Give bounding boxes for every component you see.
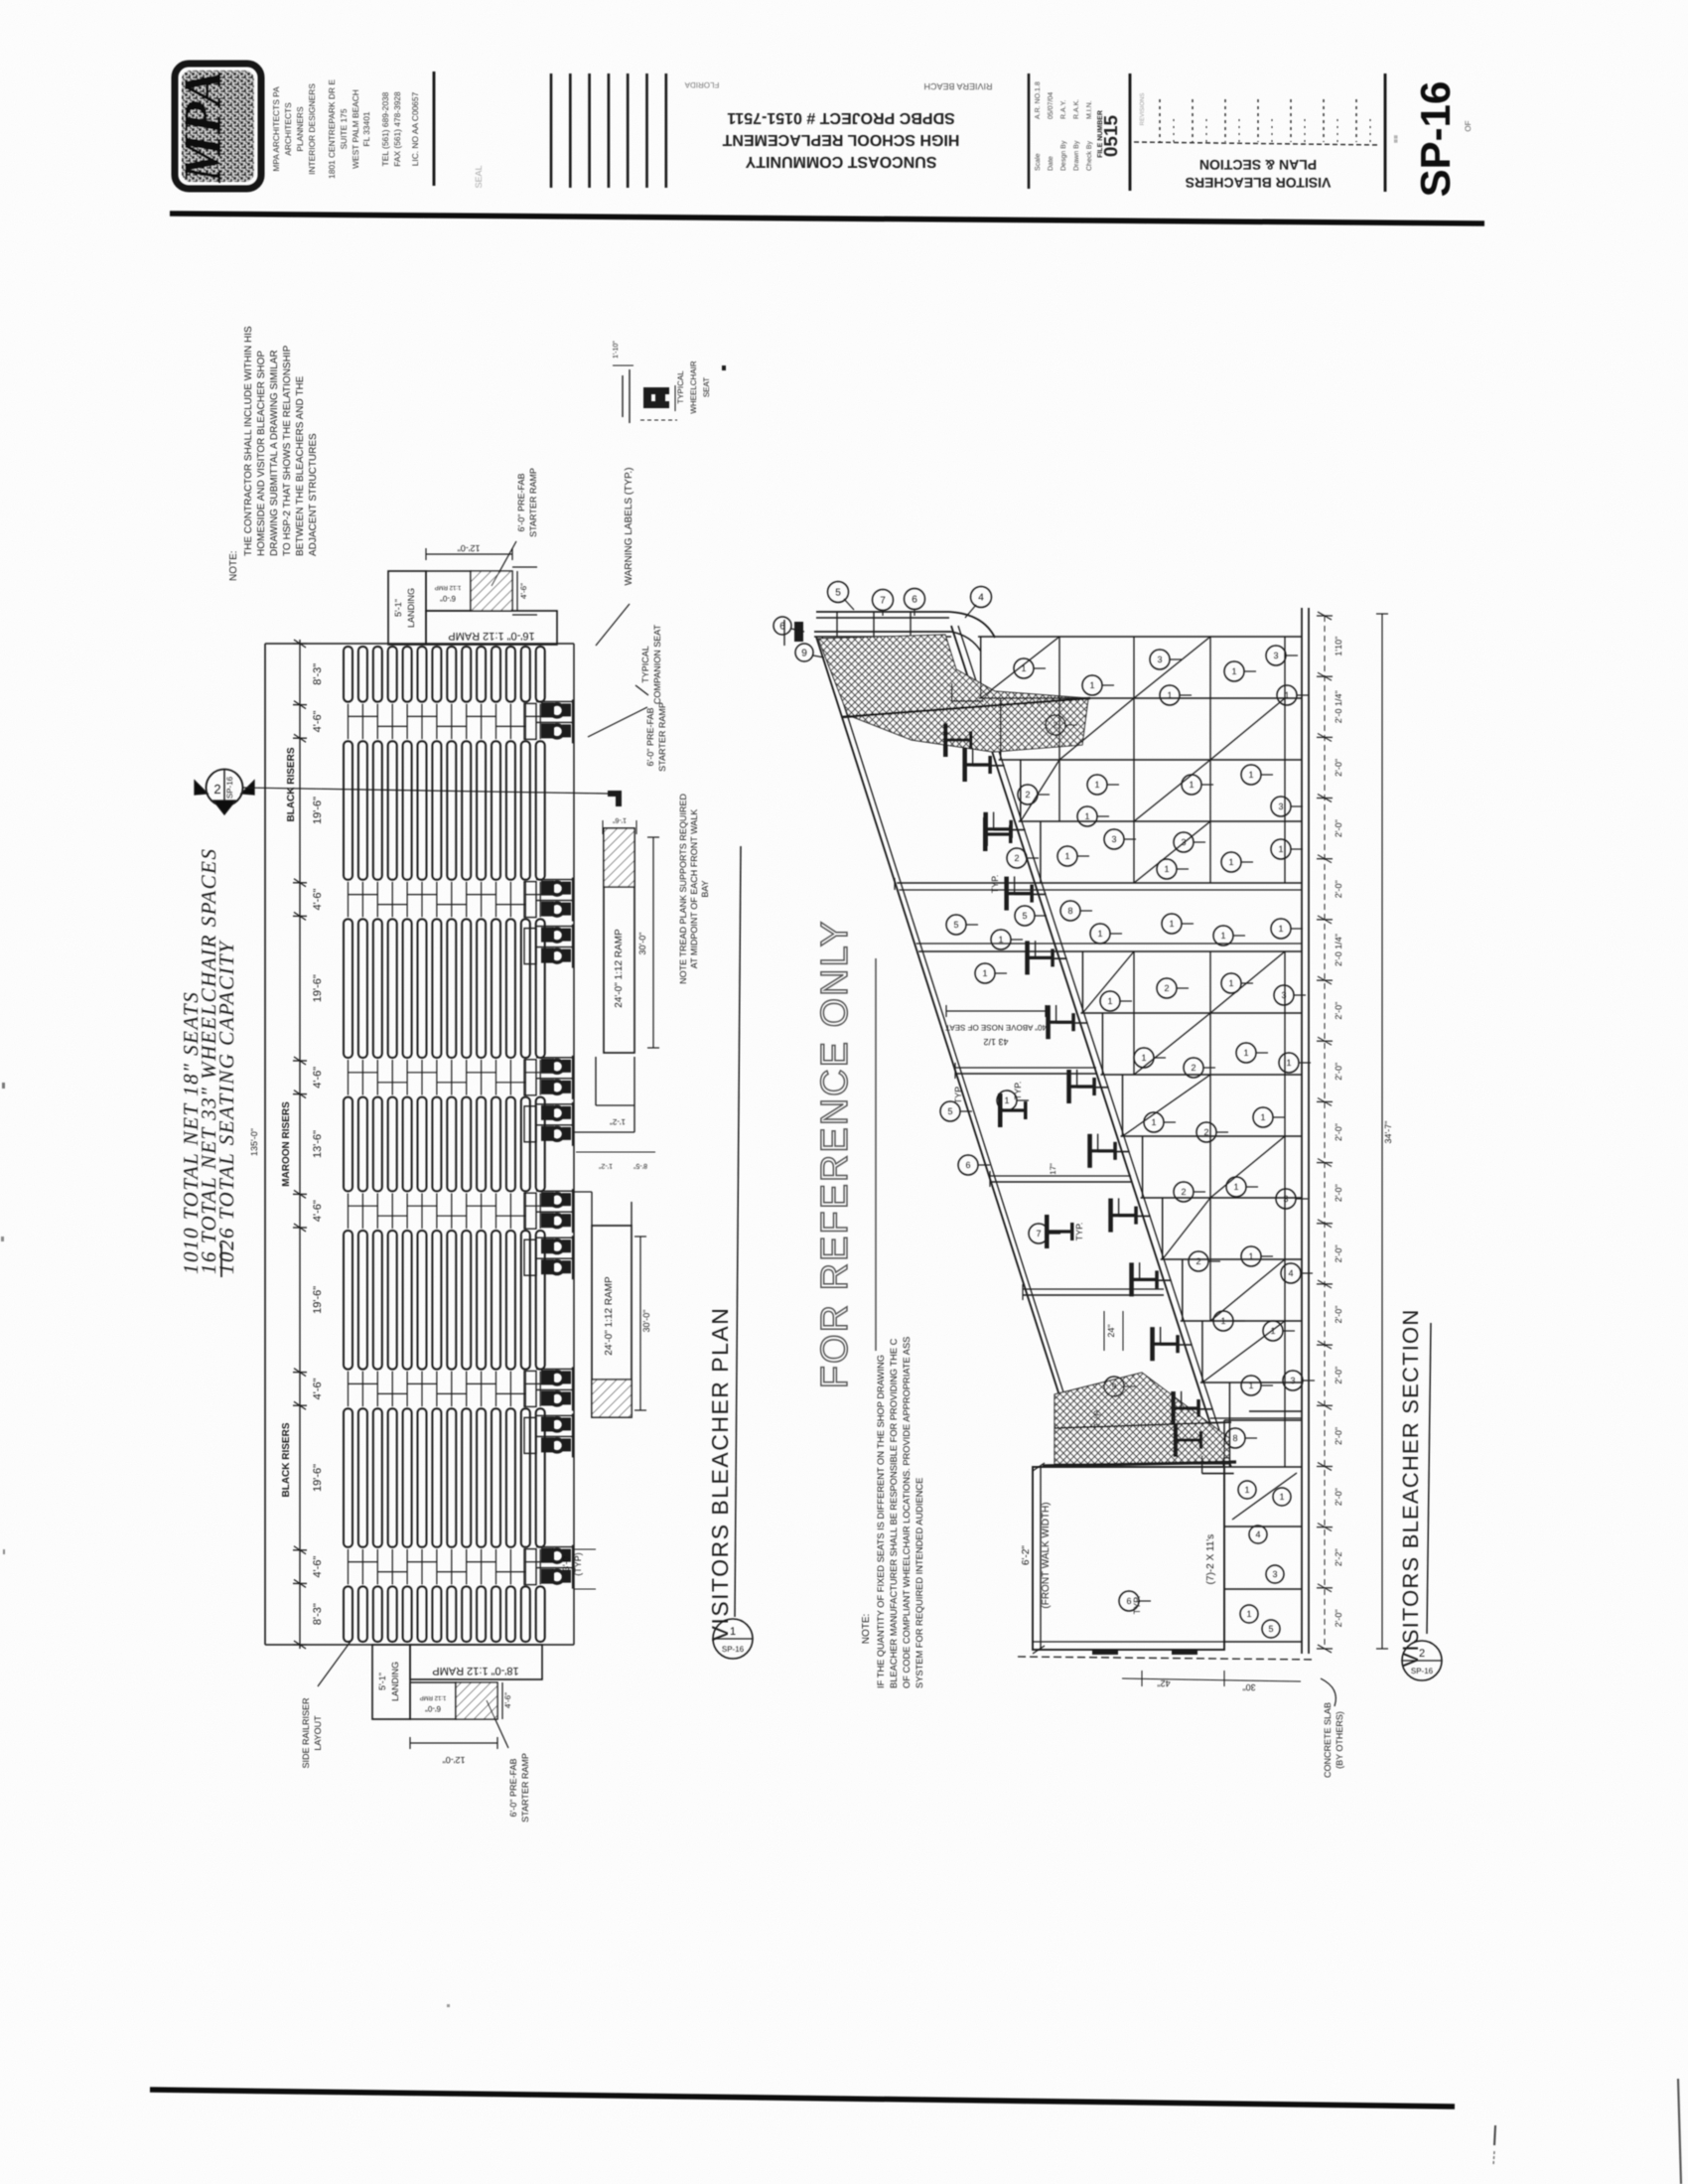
svg-text:Date: Date: [1048, 156, 1055, 171]
svg-text:2: 2: [1181, 1187, 1186, 1197]
svg-text:HIGH SCHOOL REPLACEMENT: HIGH SCHOOL REPLACEMENT: [722, 131, 959, 148]
svg-text:19'-6": 19'-6": [312, 1286, 324, 1314]
svg-text:19'-6": 19'-6": [312, 797, 324, 824]
svg-text:NOTE TREAD PLANK SUPPORTS REQ: NOTE TREAD PLANK SUPPORTS REQUIRED: [678, 794, 688, 984]
svg-text:6'-0": 6'-0": [425, 1704, 441, 1713]
svg-text:AT MIDPOINT OF EACH FRONT WALK: AT MIDPOINT OF EACH FRONT WALK: [689, 809, 699, 969]
svg-text:2'-0": 2'-0": [1334, 759, 1343, 777]
svg-text:1'-2": 1'-2": [599, 1162, 613, 1169]
svg-text:5: 5: [835, 588, 841, 599]
svg-text:2'-0 1/4": 2'-0 1/4": [1334, 690, 1343, 723]
svg-text:TYP.: TYP.: [1074, 1223, 1084, 1241]
svg-text:1: 1: [1167, 690, 1172, 700]
svg-text:12'-0": 12'-0": [443, 1755, 466, 1765]
svg-text:IF THE QUANTITY OF FIXED SEATS: IF THE QUANTITY OF FIXED SEATS IS DIFFER…: [876, 1355, 886, 1688]
svg-text:12'-0": 12'-0": [458, 543, 481, 553]
svg-text:2'-0": 2'-0": [1334, 1184, 1343, 1202]
svg-text:COMPANION SEAT: COMPANION SEAT: [652, 624, 662, 704]
svg-text:4'-6": 4'-6": [312, 1200, 324, 1222]
svg-text:1: 1: [998, 935, 1003, 945]
svg-text:SEAL: SEAL: [474, 165, 484, 188]
svg-text:3: 3: [1281, 990, 1286, 1000]
svg-text:2: 2: [1203, 1127, 1208, 1137]
svg-text:WHEELCHAIR: WHEELCHAIR: [689, 361, 698, 414]
svg-text:8'-5": 8'-5": [633, 1162, 647, 1169]
svg-text:6: 6: [1126, 1596, 1131, 1606]
svg-text:Check By: Check By: [1085, 141, 1093, 171]
svg-text:9: 9: [801, 649, 807, 659]
svg-text:2'-0 1/4": 2'-0 1/4": [1334, 934, 1343, 966]
svg-text:1: 1: [1084, 811, 1089, 821]
svg-text:TYPICAL: TYPICAL: [676, 370, 685, 404]
svg-text:5: 5: [947, 1106, 952, 1116]
svg-text:RIVIERA BEACH: RIVIERA BEACH: [923, 81, 992, 91]
svg-text:24'-0" 1:12 RAMP: 24'-0" 1:12 RAMP: [614, 929, 625, 1008]
svg-text:PLAN & SECTION: PLAN & SECTION: [1199, 157, 1317, 173]
svg-text:1: 1: [1141, 1053, 1146, 1063]
svg-text:M.I.N.: M.I.N.: [1086, 100, 1093, 119]
svg-text:Drawn By: Drawn By: [1073, 140, 1080, 171]
svg-text:1: 1: [1279, 1492, 1284, 1502]
svg-text:17": 17": [1049, 1163, 1057, 1175]
svg-text:BLACK RISERS: BLACK RISERS: [286, 747, 297, 821]
svg-text:1: 1: [1220, 1316, 1225, 1326]
svg-text:1: 1: [1284, 690, 1289, 700]
svg-text:2'-2": 2'-2": [1334, 1548, 1343, 1566]
svg-text:1'-2": 1'-2": [610, 1117, 626, 1126]
svg-text:2: 2: [1164, 983, 1169, 993]
svg-text:WARNING LABELS (TYP.): WARNING LABELS (TYP.): [624, 468, 634, 586]
svg-text:(TYP): (TYP): [573, 1552, 583, 1576]
svg-text:R.A.K.: R.A.K.: [1073, 99, 1080, 119]
svg-text:1: 1: [1260, 1112, 1265, 1122]
svg-text:2'-0": 2'-0": [1334, 1244, 1343, 1262]
svg-text:3'-0": 3'-0": [561, 1553, 571, 1571]
svg-text:3: 3: [1283, 1194, 1288, 1204]
svg-text:1: 1: [1228, 857, 1233, 867]
svg-text:(FRONT WALK WIDTH): (FRONT WALK WIDTH): [1041, 1502, 1052, 1608]
svg-text:43 1/2: 43 1/2: [983, 1037, 1008, 1047]
svg-text:NOTE:: NOTE:: [861, 1614, 872, 1645]
svg-text:LANDING: LANDING: [406, 588, 416, 628]
svg-text:7: 7: [880, 596, 886, 607]
svg-text:FAX (561) 478-3928: FAX (561) 478-3928: [392, 91, 402, 167]
svg-text:SIDE RAILRISER: SIDE RAILRISER: [301, 1697, 311, 1769]
svg-text:1: 1: [1189, 780, 1194, 790]
svg-text:MPA: MPA: [173, 70, 232, 183]
svg-text:3: 3: [1278, 801, 1283, 811]
svg-text:LAYOUT: LAYOUT: [313, 1715, 323, 1751]
svg-text:4'-6": 4'-6": [312, 1378, 324, 1399]
svg-text:1: 1: [1246, 1609, 1251, 1619]
svg-text:7: 7: [1036, 1229, 1041, 1238]
svg-text:2: 2: [1196, 1256, 1200, 1266]
svg-text:THE CONTRACTOR SHALL INCLUDE W: THE CONTRACTOR SHALL INCLUDE WITHIN HIS: [243, 326, 254, 556]
svg-text:3: 3: [1272, 1569, 1277, 1579]
svg-text:1: 1: [1278, 844, 1283, 854]
svg-text:2'-0": 2'-0": [1334, 1123, 1343, 1141]
svg-text:4'-6": 4'-6": [519, 583, 528, 599]
svg-text:TYP.: TYP.: [1132, 1596, 1142, 1615]
svg-text:5'-1": 5'-1": [393, 599, 403, 617]
svg-text:5'-1": 5'-1": [377, 1673, 387, 1690]
svg-text:6'-2": 6'-2": [1021, 1545, 1032, 1565]
svg-text:1: 1: [1248, 1251, 1253, 1261]
svg-text:TYPICAL: TYPICAL: [640, 646, 650, 683]
svg-text:34'-7": 34'-7": [1383, 1121, 1393, 1144]
svg-text:3: 3: [1181, 837, 1186, 847]
svg-text:DRAWING SUBMITTAL A DRAWING SI: DRAWING SUBMITTAL A DRAWING SIMILAR: [269, 350, 280, 556]
svg-text:1: 1: [1220, 931, 1225, 941]
svg-text:(7)-2 X 11's: (7)-2 X 11's: [1205, 1534, 1216, 1585]
svg-text:8'-3": 8'-3": [312, 1603, 324, 1625]
svg-text:42": 42": [1157, 1678, 1170, 1688]
svg-text:Scale: Scale: [1034, 153, 1042, 171]
svg-text:4: 4: [1255, 1529, 1260, 1539]
svg-text:TYP.: TYP.: [953, 1086, 963, 1104]
svg-text:MAROON RISERS: MAROON RISERS: [281, 1101, 292, 1187]
svg-text:1: 1: [1228, 978, 1233, 988]
svg-text:FOR REFERENCE ONLY: FOR REFERENCE ONLY: [814, 920, 856, 1388]
svg-text:1: 1: [1244, 1485, 1249, 1495]
svg-text:1: 1: [1231, 666, 1236, 676]
svg-text:30": 30": [1242, 1682, 1255, 1692]
svg-text:STARTER RAMP: STARTER RAMP: [520, 1753, 530, 1822]
svg-text:1: 1: [1094, 780, 1099, 790]
svg-text:24": 24": [1106, 1324, 1116, 1337]
svg-text:ARCHITECTS: ARCHITECTS: [283, 102, 293, 156]
svg-text:6: 6: [779, 622, 785, 633]
svg-text:STARTER RAMP: STARTER RAMP: [528, 468, 538, 537]
svg-text:1: 1: [1151, 1117, 1156, 1127]
svg-text:6'-0": 6'-0": [440, 594, 456, 603]
svg-text:1: 1: [1097, 929, 1102, 939]
svg-text:4'-6": 4'-6": [312, 1067, 324, 1089]
svg-text:SDPBC PROJECT # 0151-7511: SDPBC PROJECT # 0151-7511: [727, 109, 955, 126]
svg-text:2'-0": 2'-0": [1334, 1063, 1343, 1081]
svg-text:WEST PALM BEACH: WEST PALM BEACH: [351, 89, 360, 169]
svg-text:SP-16: SP-16: [1412, 81, 1459, 198]
svg-text:3: 3: [1273, 651, 1278, 660]
svg-text:4'-6": 4'-6": [312, 1556, 324, 1578]
svg-text:2: 2: [1025, 790, 1030, 800]
svg-text:VISITOR BLEACHERS: VISITOR BLEACHERS: [1186, 175, 1332, 191]
svg-text:1: 1: [1089, 680, 1094, 690]
svg-text:1'-10": 1'-10": [613, 341, 620, 359]
svg-text:2'-0": 2'-0": [1334, 819, 1343, 837]
svg-text:FLORIDA: FLORIDA: [684, 80, 719, 89]
svg-text:TEL (561) 689-2038: TEL (561) 689-2038: [380, 91, 390, 166]
svg-text:SUITE 175: SUITE 175: [339, 108, 349, 149]
svg-text:1:12 RMP: 1:12 RMP: [435, 584, 462, 591]
svg-text:LIC. NO AA C00657: LIC. NO AA C00657: [410, 91, 420, 166]
svg-text:1: 1: [730, 1626, 736, 1638]
svg-text:1: 1: [1286, 1058, 1291, 1068]
svg-text:TYP.: TYP.: [990, 875, 1000, 894]
svg-text:1: 1: [1278, 924, 1283, 934]
svg-text:SEAT: SEAT: [702, 377, 711, 397]
svg-text:30'-0": 30'-0": [637, 933, 647, 955]
svg-text:BETWEEN THE BLEACHERS AND THE: BETWEEN THE BLEACHERS AND THE: [295, 375, 306, 556]
svg-text:2'-0": 2'-0": [1334, 1427, 1343, 1445]
svg-text:18'-0" 1:12 RAMP: 18'-0" 1:12 RAMP: [432, 1665, 518, 1676]
svg-text:SYSTEM FOR REQUIRED INTENDED A: SYSTEM FOR REQUIRED INTENDED AUDIENCE: [914, 1478, 924, 1688]
svg-text:MPA ARCHITECTS PA: MPA ARCHITECTS PA: [271, 86, 281, 172]
svg-text:30'-0": 30'-0": [641, 1310, 651, 1333]
svg-text:5: 5: [1022, 911, 1027, 921]
svg-text:1026 TOTAL SEATING CAPACITY: 1026 TOTAL SEATING CAPACITY: [214, 940, 238, 1274]
svg-text:1: 1: [1004, 1095, 1009, 1105]
svg-text:A.R. NO.1.8: A.R. NO.1.8: [1035, 81, 1042, 119]
svg-text:INTERIOR DESIGNERS: INTERIOR DESIGNERS: [307, 83, 317, 175]
svg-text:SP-16: SP-16: [722, 1645, 745, 1654]
svg-text:PLANNERS: PLANNERS: [295, 106, 305, 152]
svg-text:5: 5: [1268, 1624, 1273, 1634]
svg-text:9: 9: [1111, 1382, 1116, 1391]
svg-text:24'-0" 1:12 RAMP: 24'-0" 1:12 RAMP: [604, 1276, 615, 1356]
svg-text:REVISIONS: REVISIONS: [1139, 93, 1146, 126]
svg-text:6: 6: [912, 595, 917, 606]
svg-text:5: 5: [953, 920, 958, 930]
svg-text:1:12 RMP: 1:12 RMP: [420, 1694, 447, 1701]
svg-text:HOMESIDE AND VISITOR BLEACHER: HOMESIDE AND VISITOR BLEACHER SHOP: [256, 351, 267, 556]
svg-text:LANDING: LANDING: [390, 1662, 400, 1701]
svg-text:2'-0": 2'-0": [1334, 1367, 1343, 1384]
svg-text:05/07/04: 05/07/04: [1047, 92, 1055, 119]
svg-text:13'-6": 13'-6": [312, 1130, 324, 1158]
svg-text:4: 4: [978, 593, 984, 604]
svg-text:SUNCOAST COMMUNITY: SUNCOAST COMMUNITY: [745, 153, 936, 170]
svg-text:4'-6": 4'-6": [312, 889, 324, 911]
svg-text:1: 1: [1107, 996, 1112, 1006]
svg-text:TO HSP-2 THAT SHOWS THE RELATI: TO HSP-2 THAT SHOWS THE RELATIONSHIP: [282, 345, 293, 556]
svg-text:Desgn By: Desgn By: [1060, 140, 1067, 171]
svg-text:1'10": 1'10": [1334, 637, 1343, 656]
svg-text:3: 3: [1157, 655, 1162, 664]
svg-text:8: 8: [1067, 906, 1072, 916]
svg-text:FL 33401: FL 33401: [361, 111, 371, 146]
svg-text:OF CODE COMPLIANT WHEELCHAIR L: OF CODE COMPLIANT WHEELCHAIR LOCATIONS. …: [902, 1337, 912, 1688]
svg-text:2'-0": 2'-0": [1334, 1488, 1343, 1506]
svg-text:16'-0" 1:12 RAMP: 16'-0" 1:12 RAMP: [448, 630, 534, 642]
svg-text:1: 1: [1233, 1182, 1238, 1192]
svg-text:≡≡: ≡≡: [1393, 135, 1400, 143]
svg-text:135'-0": 135'-0": [249, 1128, 259, 1156]
svg-text:6'-0" PRE-FAB: 6'-0" PRE-FAB: [516, 474, 526, 532]
svg-text:VISITORS BLEACHER PLAN: VISITORS BLEACHER PLAN: [707, 1307, 733, 1642]
svg-text:R.A.Y.: R.A.Y.: [1060, 100, 1067, 119]
svg-text:4'-6": 4'-6": [312, 710, 324, 732]
svg-text:6'-0" PRE-FAB: 6'-0" PRE-FAB: [508, 1759, 518, 1818]
svg-text:0515: 0515: [1101, 114, 1122, 157]
svg-text:SP-16: SP-16: [1411, 1667, 1434, 1675]
svg-text:1: 1: [982, 968, 987, 978]
svg-text:CONCRETE SLAB: CONCRETE SLAB: [1323, 1702, 1333, 1778]
svg-text:STARTER RAMP: STARTER RAMP: [657, 702, 667, 772]
svg-text:4'-6": 4'-6": [503, 1692, 512, 1708]
svg-text:2'-0": 2'-0": [1334, 1609, 1343, 1627]
svg-text:TYP.: TYP.: [1092, 1409, 1102, 1428]
svg-text:1'-6": 1'-6": [613, 816, 627, 823]
svg-text:ADJACENT STRUCTURES: ADJACENT STRUCTURES: [308, 433, 319, 556]
svg-text:8: 8: [1232, 1433, 1237, 1443]
svg-text:1: 1: [1270, 1326, 1275, 1336]
svg-text:1: 1: [1021, 663, 1026, 673]
svg-text:2: 2: [1014, 853, 1019, 863]
svg-text:BLACK RISERS: BLACK RISERS: [281, 1422, 292, 1497]
svg-text:2: 2: [1191, 1063, 1196, 1073]
svg-text:2'-0": 2'-0": [1334, 1002, 1343, 1020]
svg-text:6: 6: [965, 1160, 970, 1170]
svg-text:1: 1: [1164, 864, 1169, 874]
svg-text:1: 1: [1169, 919, 1174, 929]
svg-text:(BY OTHERS): (BY OTHERS): [1335, 1711, 1344, 1769]
svg-text:2: 2: [213, 782, 220, 797]
svg-text:2'-0": 2'-0": [1334, 880, 1343, 898]
svg-text:1: 1: [1248, 770, 1253, 780]
svg-text:BAY: BAY: [700, 880, 710, 897]
svg-text:19'-6": 19'-6": [312, 974, 324, 1002]
svg-text:2: 2: [1419, 1648, 1425, 1660]
svg-text:1: 1: [1248, 1381, 1253, 1390]
svg-text:OF: OF: [1464, 120, 1473, 131]
svg-text:3: 3: [1111, 834, 1116, 844]
svg-text:BLEACHER MANUFACTURER SHALL BE: BLEACHER MANUFACTURER SHALL BE RESPONSIB…: [889, 1338, 899, 1688]
svg-text:4: 4: [1288, 1268, 1293, 1278]
svg-text:SP-16: SP-16: [225, 776, 234, 799]
svg-text:VISITORS BLEACHER SECTION: VISITORS BLEACHER SECTION: [1398, 1309, 1423, 1668]
svg-text:2'-0": 2'-0": [1334, 1306, 1343, 1324]
svg-text:2: 2: [1053, 720, 1057, 730]
svg-text:8'-3": 8'-3": [312, 663, 324, 685]
svg-text:NOTE:: NOTE:: [228, 550, 239, 581]
svg-text:TYP.: TYP.: [1013, 1082, 1023, 1100]
svg-text:6'-0" PRE-FAB: 6'-0" PRE-FAB: [645, 708, 655, 767]
svg-text:19'-6": 19'-6": [312, 1464, 324, 1492]
svg-text:1: 1: [1243, 1048, 1248, 1058]
svg-text:40" ABOVE NOSE OF SEAT: 40" ABOVE NOSE OF SEAT: [945, 1023, 1047, 1032]
svg-text:1801 CENTREPARK DR E: 1801 CENTREPARK DR E: [327, 79, 337, 179]
svg-text:1: 1: [1064, 851, 1069, 861]
svg-text:3: 3: [1290, 1376, 1295, 1385]
